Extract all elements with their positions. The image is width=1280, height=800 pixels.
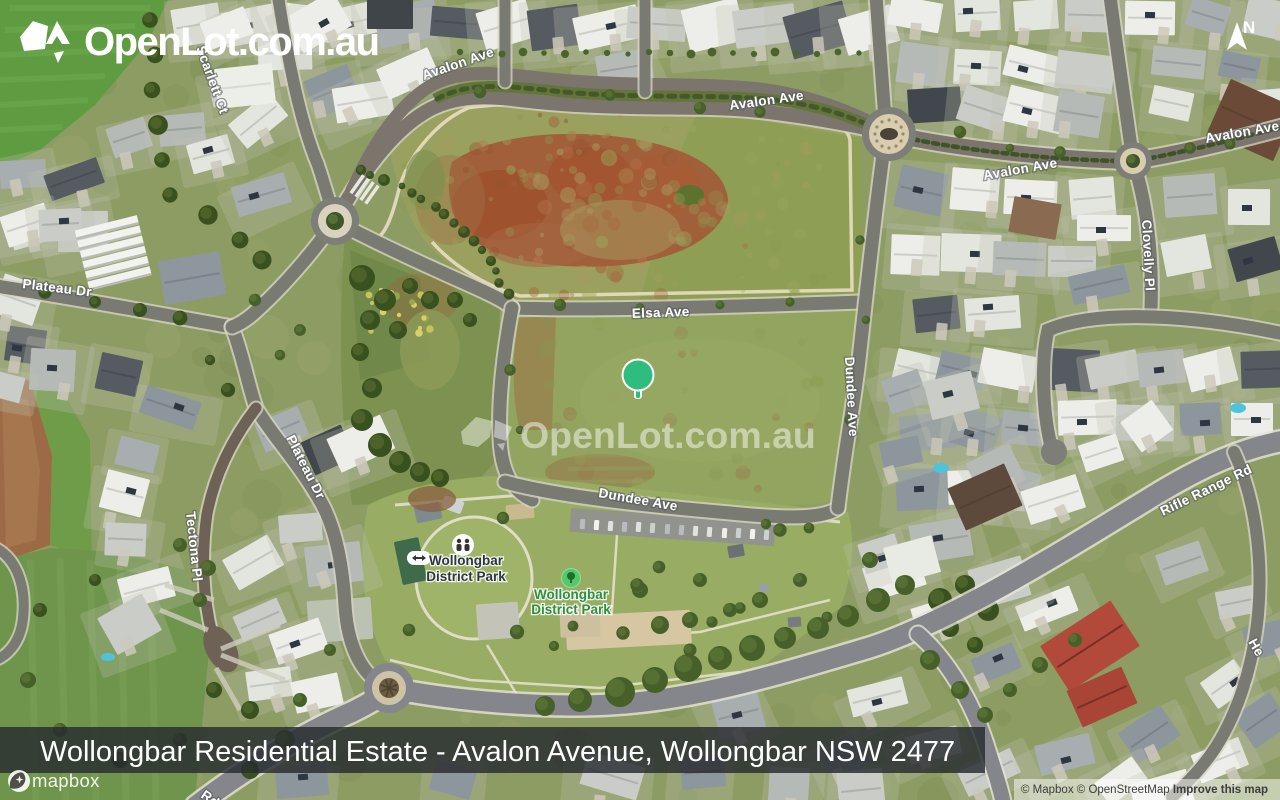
svg-text:District Park: District Park — [531, 602, 611, 617]
svg-text:© Mapbox © OpenStreetMap Impro: © Mapbox © OpenStreetMap Improve this ma… — [1021, 784, 1268, 796]
svg-text:Wollongbar: Wollongbar — [534, 587, 609, 602]
svg-text:N: N — [1243, 18, 1255, 37]
svg-text:OpenLot.com.au: OpenLot.com.au — [84, 20, 379, 64]
svg-text:mapbox: mapbox — [32, 770, 100, 791]
svg-text:OpenLot.com.au: OpenLot.com.au — [520, 414, 816, 456]
svg-text:Wollongbar: Wollongbar — [429, 553, 504, 568]
svg-text:Wollongbar Residential Estate: Wollongbar Residential Estate - Avalon A… — [40, 736, 955, 768]
svg-text:Elsa Ave: Elsa Ave — [632, 304, 690, 321]
svg-text:District Park: District Park — [426, 569, 506, 584]
